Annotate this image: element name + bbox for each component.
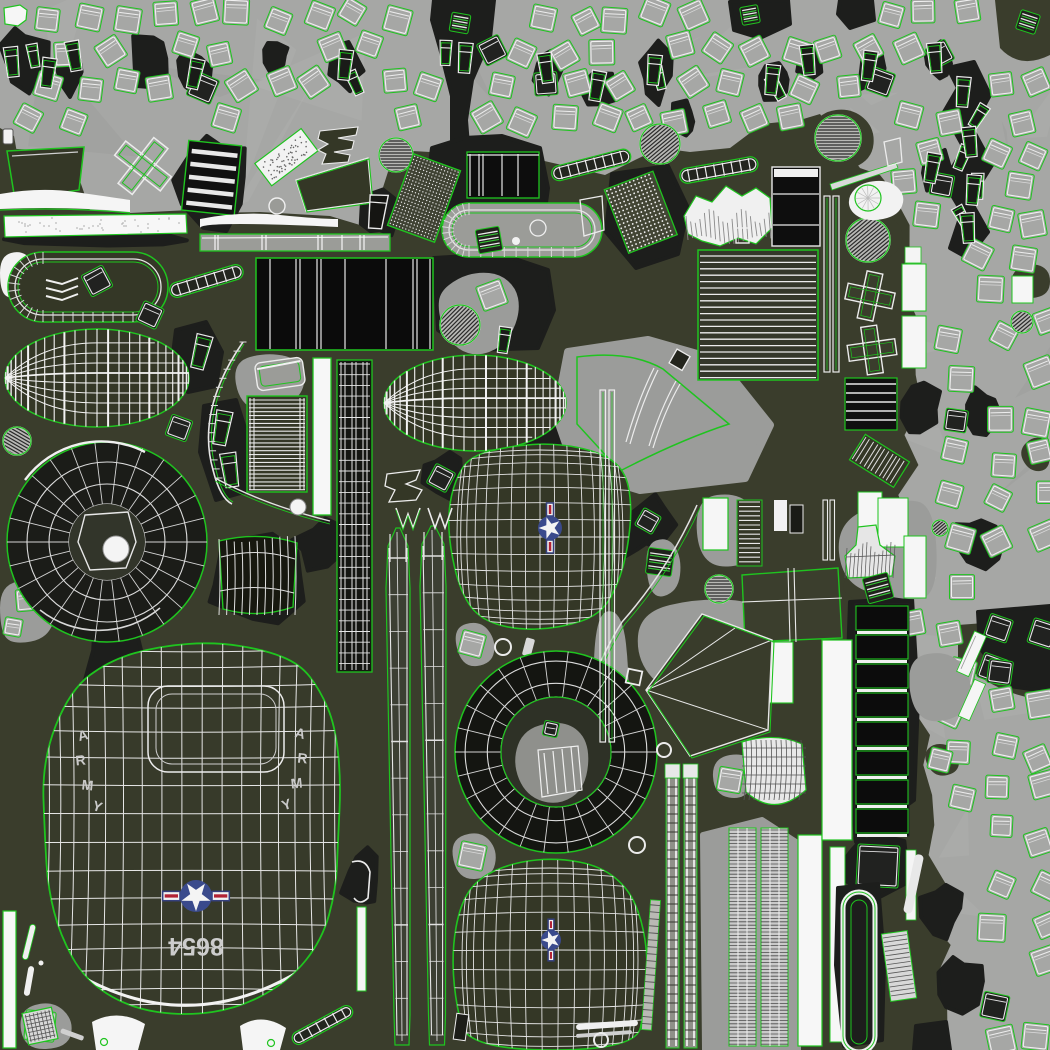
svg-text:M: M	[81, 776, 94, 793]
svg-text:M: M	[290, 774, 303, 791]
svg-text:8654: 8654	[168, 932, 224, 960]
svg-text:R: R	[297, 750, 309, 767]
svg-text:R: R	[75, 752, 87, 769]
